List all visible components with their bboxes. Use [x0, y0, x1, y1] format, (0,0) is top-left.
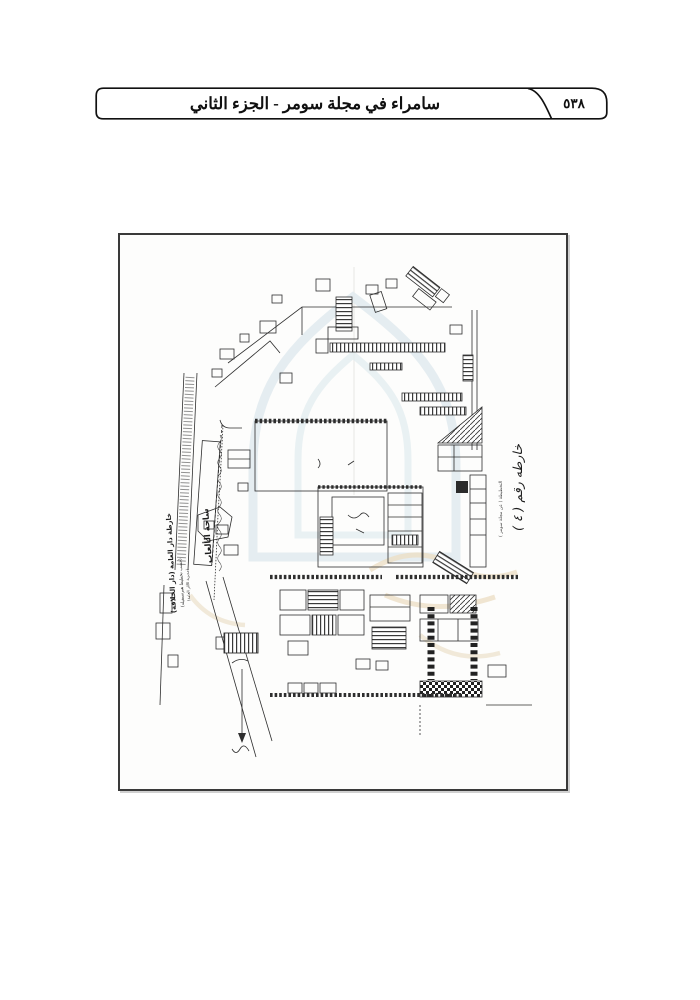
plan-lower-rooms	[280, 590, 478, 670]
figure-frame: ساحة الألعاب خارطة دار العامة (دار الخلا…	[118, 233, 568, 791]
scanned-book-page: سامراء في مجلة سومر - الجزء الثاني ٥٣٨	[0, 0, 700, 1000]
figure-caption-main: خارطة دار العامة (دار الخلافة)	[165, 513, 178, 614]
figure-caption-sub2: (مديرية الآثار العامة)	[184, 568, 191, 601]
plan-labels: ساحة الألعاب خارطة دار العامة (دار الخلا…	[165, 444, 526, 614]
site-plan-drawing: ساحة الألعاب خارطة دار العامة (دار الخلا…	[120, 235, 566, 789]
page-title: سامراء في مجلة سومر - الجزء الثاني	[95, 87, 535, 120]
page-number: ٥٣٨	[552, 88, 596, 120]
plan-top-structures	[212, 266, 449, 383]
map-source-note: التخطيطة ( عن مجلة سومر )	[498, 481, 504, 537]
street-label: ساحة الألعاب	[199, 508, 215, 564]
map-number-label: خارطه رقم ( ٤ )	[510, 444, 526, 531]
plan-bottom-walls	[270, 607, 482, 735]
